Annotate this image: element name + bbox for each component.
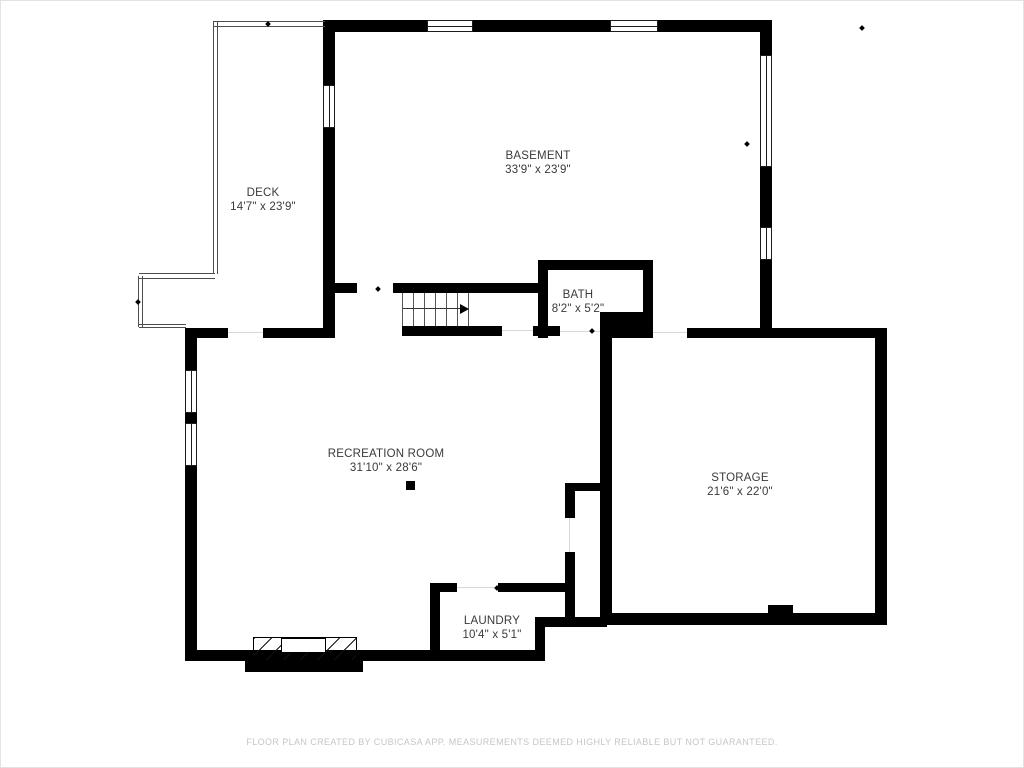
wall	[533, 326, 560, 336]
window	[610, 20, 658, 32]
room-dimensions: 31'10" x 28'6"	[328, 461, 445, 475]
opening-line	[569, 518, 570, 552]
room-label-bath: BATH 8'2" x 5'2"	[552, 288, 604, 316]
door-marker	[744, 141, 750, 147]
room-dimensions: 21'6" x 22'0"	[707, 485, 773, 499]
wall-nub	[768, 605, 793, 614]
room-label-deck: DECK 14'7" x 23'9"	[230, 186, 296, 214]
wall	[600, 332, 612, 617]
wall	[565, 552, 575, 617]
opening-line	[457, 587, 498, 588]
window	[323, 85, 335, 128]
wall	[325, 20, 427, 32]
room-label-recreation: RECREATION ROOM 31'10" x 28'6"	[328, 447, 445, 475]
wall	[760, 20, 772, 55]
room-dimensions: 10'4" x 5'1"	[462, 628, 521, 642]
wall	[430, 583, 440, 661]
room-label-laundry: LAUNDRY 10'4" x 5'1"	[462, 614, 521, 642]
wall	[643, 260, 653, 315]
stairs-direction-line	[403, 308, 460, 309]
wall	[875, 328, 887, 625]
support-column	[406, 481, 415, 490]
room-dimensions: 33'9" x 23'9"	[505, 163, 571, 177]
room-dimensions: 14'7" x 23'9"	[230, 200, 296, 214]
wall	[402, 326, 502, 336]
door-marker	[375, 286, 381, 292]
wall	[323, 128, 335, 338]
window	[185, 370, 197, 413]
room-name: BASEMENT	[505, 149, 571, 163]
window	[185, 423, 197, 466]
wall	[538, 260, 653, 270]
wall	[323, 20, 335, 85]
wall	[393, 283, 538, 293]
wall	[687, 328, 887, 338]
opening-line	[653, 332, 687, 333]
room-label-storage: STORAGE 21'6" x 22'0"	[707, 471, 773, 499]
wall	[185, 650, 545, 661]
opening-line	[502, 330, 533, 331]
wall	[570, 483, 602, 491]
disclaimer-text: FLOOR PLAN CREATED BY CUBICASA APP. MEAS…	[0, 737, 1024, 747]
fireplace-hearth	[245, 661, 363, 672]
wall	[498, 583, 570, 592]
room-dimensions: 8'2" x 5'2"	[552, 302, 604, 316]
wall	[430, 583, 457, 592]
room-label-basement: BASEMENT 33'9" x 23'9"	[505, 149, 571, 177]
room-name: LAUNDRY	[462, 614, 521, 628]
wall	[185, 466, 197, 661]
wall	[760, 260, 772, 338]
floor-plan: DECK 14'7" x 23'9" BASEMENT 33'9" x 23'9…	[0, 0, 1024, 768]
wall	[535, 617, 545, 661]
wall	[185, 413, 197, 423]
window	[427, 20, 473, 32]
wall	[535, 617, 607, 627]
wall	[185, 328, 197, 370]
fireplace-firebox	[281, 638, 326, 653]
opening-line	[228, 332, 263, 333]
door-marker	[589, 328, 595, 334]
room-name: RECREATION ROOM	[328, 447, 445, 461]
wall	[473, 20, 610, 32]
stairs-direction-arrow-icon	[460, 304, 469, 314]
wall	[333, 283, 357, 293]
room-name: STORAGE	[707, 471, 773, 485]
wall	[263, 328, 335, 338]
door-marker	[859, 25, 865, 31]
wall	[602, 613, 887, 625]
window	[760, 227, 772, 260]
window	[760, 55, 772, 167]
room-name: DECK	[230, 186, 296, 200]
room-name: BATH	[552, 288, 604, 302]
wall	[658, 20, 772, 32]
wall	[760, 167, 772, 227]
